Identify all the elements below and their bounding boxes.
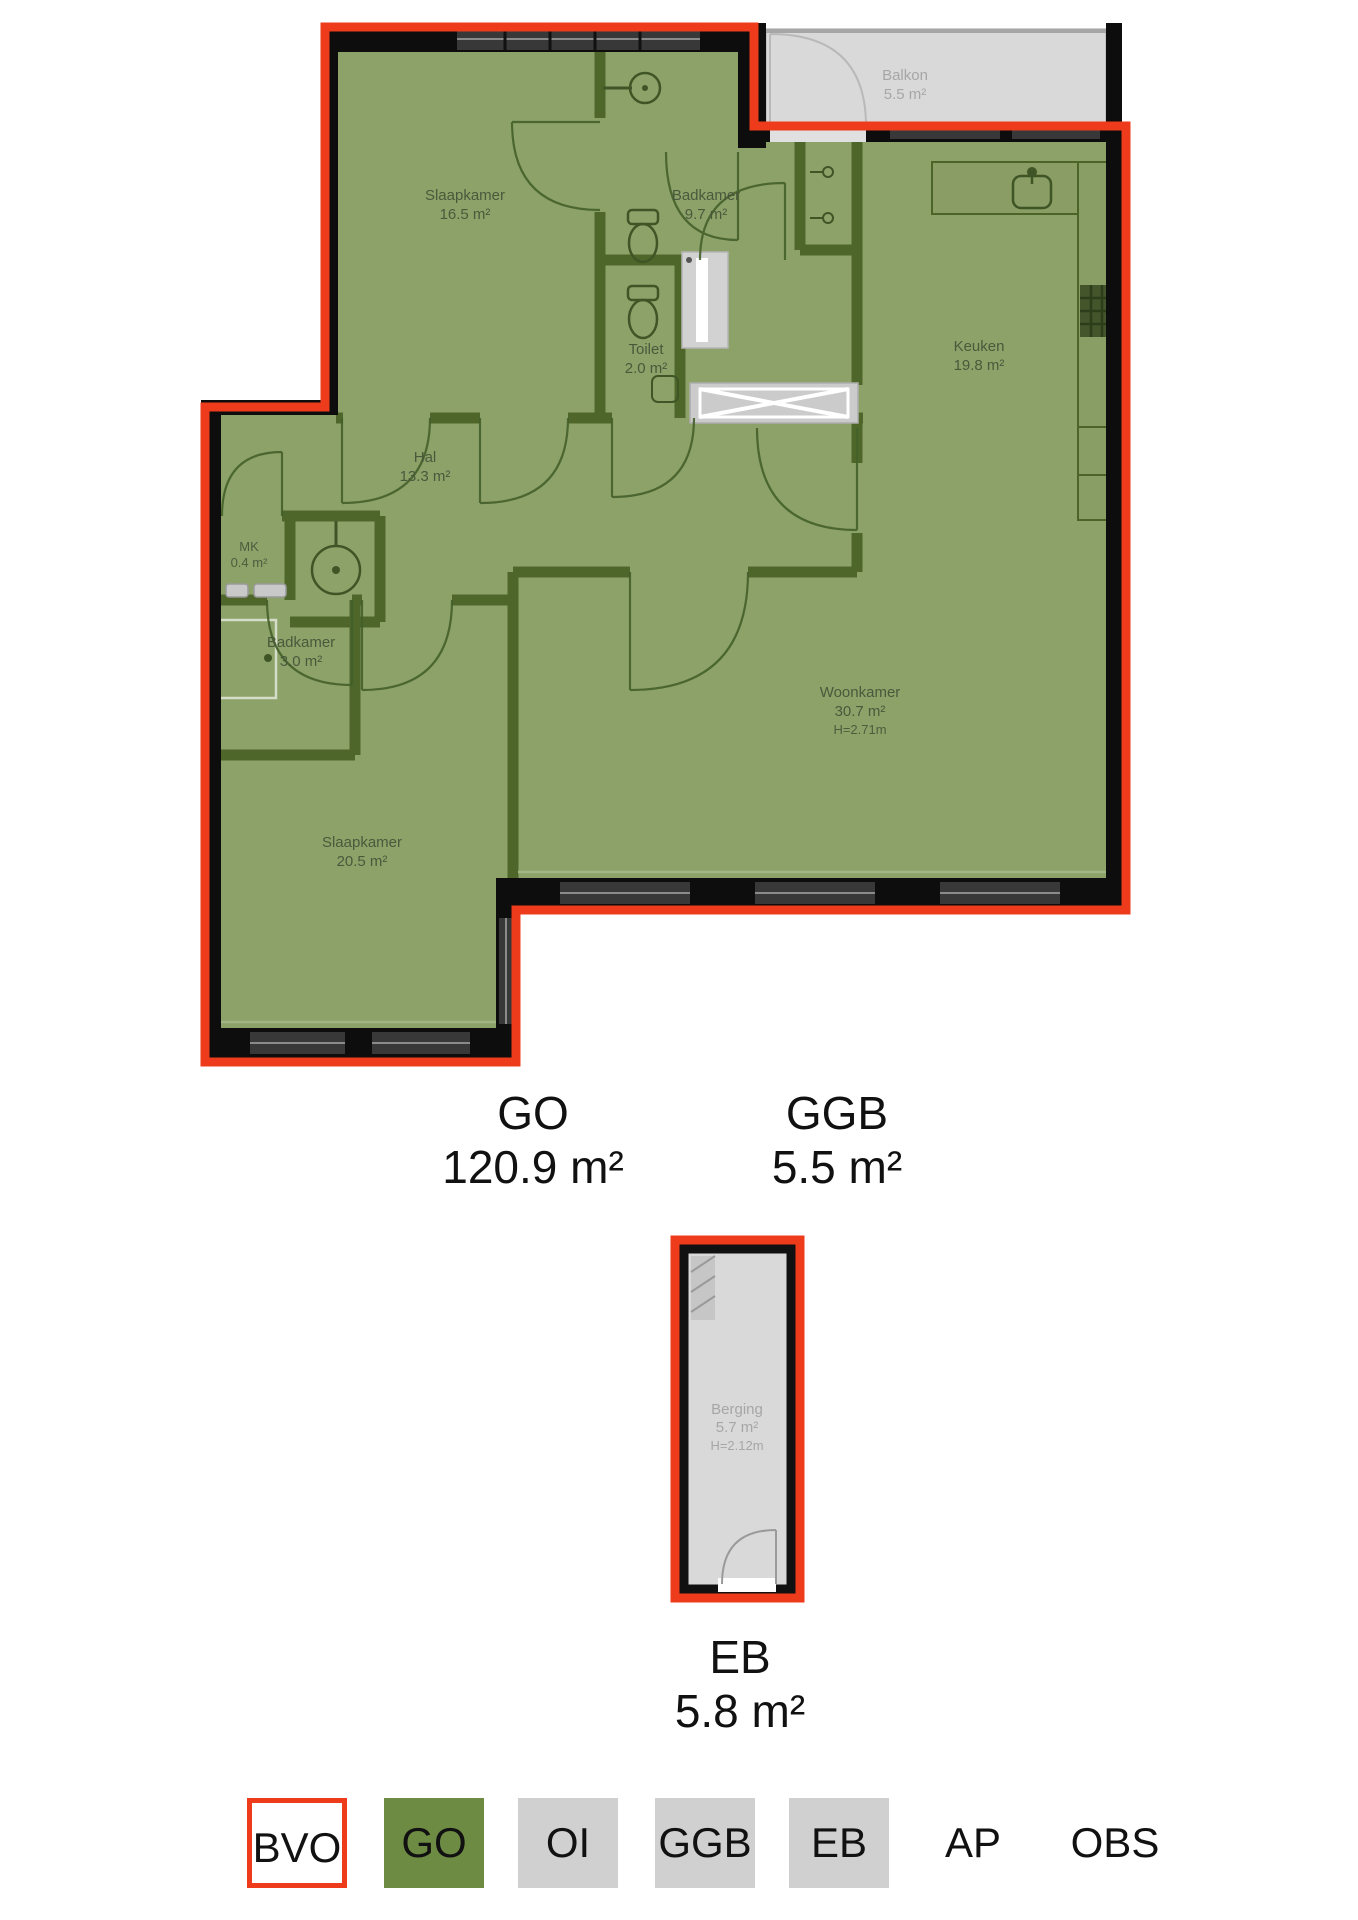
room-label-toilet: Toilet xyxy=(628,341,664,358)
meter-icons xyxy=(226,584,286,597)
room-label-slaapkamer-1: Slaapkamer xyxy=(425,187,505,204)
eb-code: EB xyxy=(590,1630,890,1684)
legend-item-obs: OBS xyxy=(1065,1798,1165,1888)
storage-door-opening xyxy=(718,1578,776,1592)
ggb-measurement: GGB 5.5 m² xyxy=(687,1086,987,1194)
room-label-slaapkamer-2: Slaapkamer xyxy=(322,834,402,851)
legend-item-ggb: GGB xyxy=(655,1798,755,1888)
room-label-balkon: Balkon xyxy=(882,67,928,84)
storage-hatch xyxy=(691,1256,715,1320)
vanity-unit xyxy=(682,252,728,348)
room-area-badkamer-1: 9.7 m² xyxy=(685,206,728,223)
floorplan-page: Slaapkamer 16.5 m² Badkamer 9.7 m² Toile… xyxy=(0,0,1358,1920)
eb-measurement: EB 5.8 m² xyxy=(590,1630,890,1738)
legend-item-go: GO xyxy=(384,1798,484,1888)
room-area-badkamer-2: 3.0 m² xyxy=(280,653,323,670)
ggb-value: 5.5 m² xyxy=(687,1140,987,1194)
room-label-mk: MK xyxy=(239,539,259,554)
room-label-badkamer-1: Badkamer xyxy=(672,187,740,204)
go-value: 120.9 m² xyxy=(383,1140,683,1194)
go-code: GO xyxy=(383,1086,683,1140)
room-area-woonkamer: 30.7 m² xyxy=(835,703,886,720)
room-area-slaapkamer-2: 20.5 m² xyxy=(337,853,388,870)
ggb-code: GGB xyxy=(687,1086,987,1140)
shower-unit xyxy=(690,383,858,423)
room-label-berging: Berging xyxy=(711,1401,763,1418)
room-height-woonkamer: H=2.71m xyxy=(833,722,886,737)
room-area-mk: 0.4 m² xyxy=(231,555,269,570)
legend-item-bvo: BVO xyxy=(247,1798,347,1888)
room-label-keuken: Keuken xyxy=(954,338,1005,355)
room-area-balkon: 5.5 m² xyxy=(884,86,927,103)
legend-item-oi: OI xyxy=(518,1798,618,1888)
room-area-slaapkamer-1: 16.5 m² xyxy=(440,206,491,223)
room-label-hal: Hal xyxy=(414,449,437,466)
go-measurement: GO 120.9 m² xyxy=(383,1086,683,1194)
room-height-berging: H=2.12m xyxy=(710,1438,763,1453)
room-area-toilet: 2.0 m² xyxy=(625,360,668,377)
room-area-berging: 5.7 m² xyxy=(716,1419,759,1436)
room-area-hal: 13.3 m² xyxy=(400,468,451,485)
legend-item-eb: EB xyxy=(789,1798,889,1888)
room-label-badkamer-2: Badkamer xyxy=(267,634,335,651)
eb-value: 5.8 m² xyxy=(590,1684,890,1738)
main-unit: Slaapkamer 16.5 m² Badkamer 9.7 m² Toile… xyxy=(201,23,1126,1062)
room-label-woonkamer: Woonkamer xyxy=(820,684,901,701)
balcony xyxy=(766,29,1106,126)
storage-unit: Berging 5.7 m² H=2.12m xyxy=(675,1240,800,1598)
room-area-keuken: 19.8 m² xyxy=(954,357,1005,374)
legend-item-ap: AP xyxy=(923,1798,1023,1888)
